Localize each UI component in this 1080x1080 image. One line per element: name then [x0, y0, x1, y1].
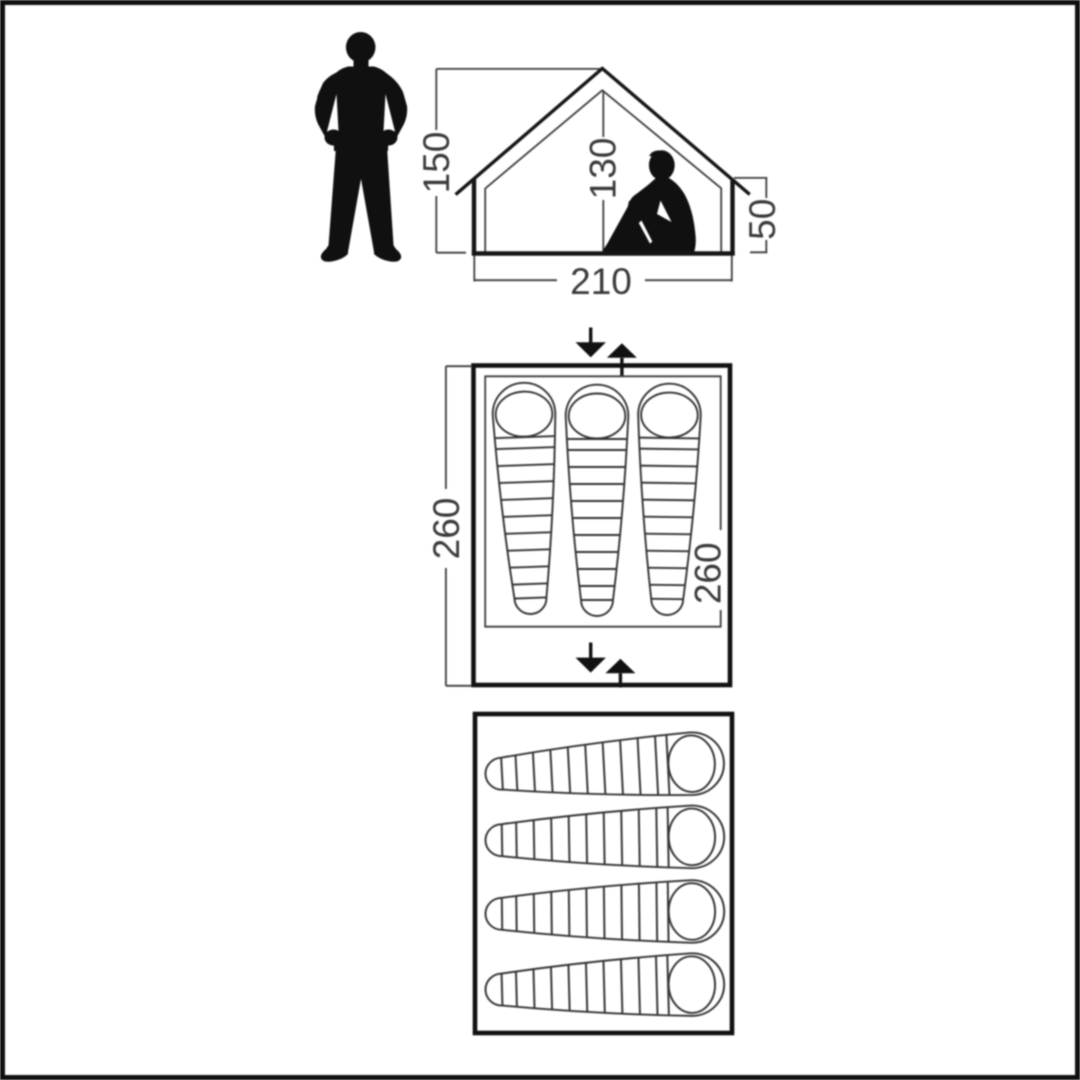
svg-text:50: 50	[742, 199, 783, 240]
svg-text:260: 260	[426, 498, 467, 560]
svg-text:210: 210	[570, 261, 632, 302]
svg-text:130: 130	[583, 138, 624, 200]
svg-text:150: 150	[416, 132, 457, 194]
svg-text:260: 260	[688, 542, 729, 604]
